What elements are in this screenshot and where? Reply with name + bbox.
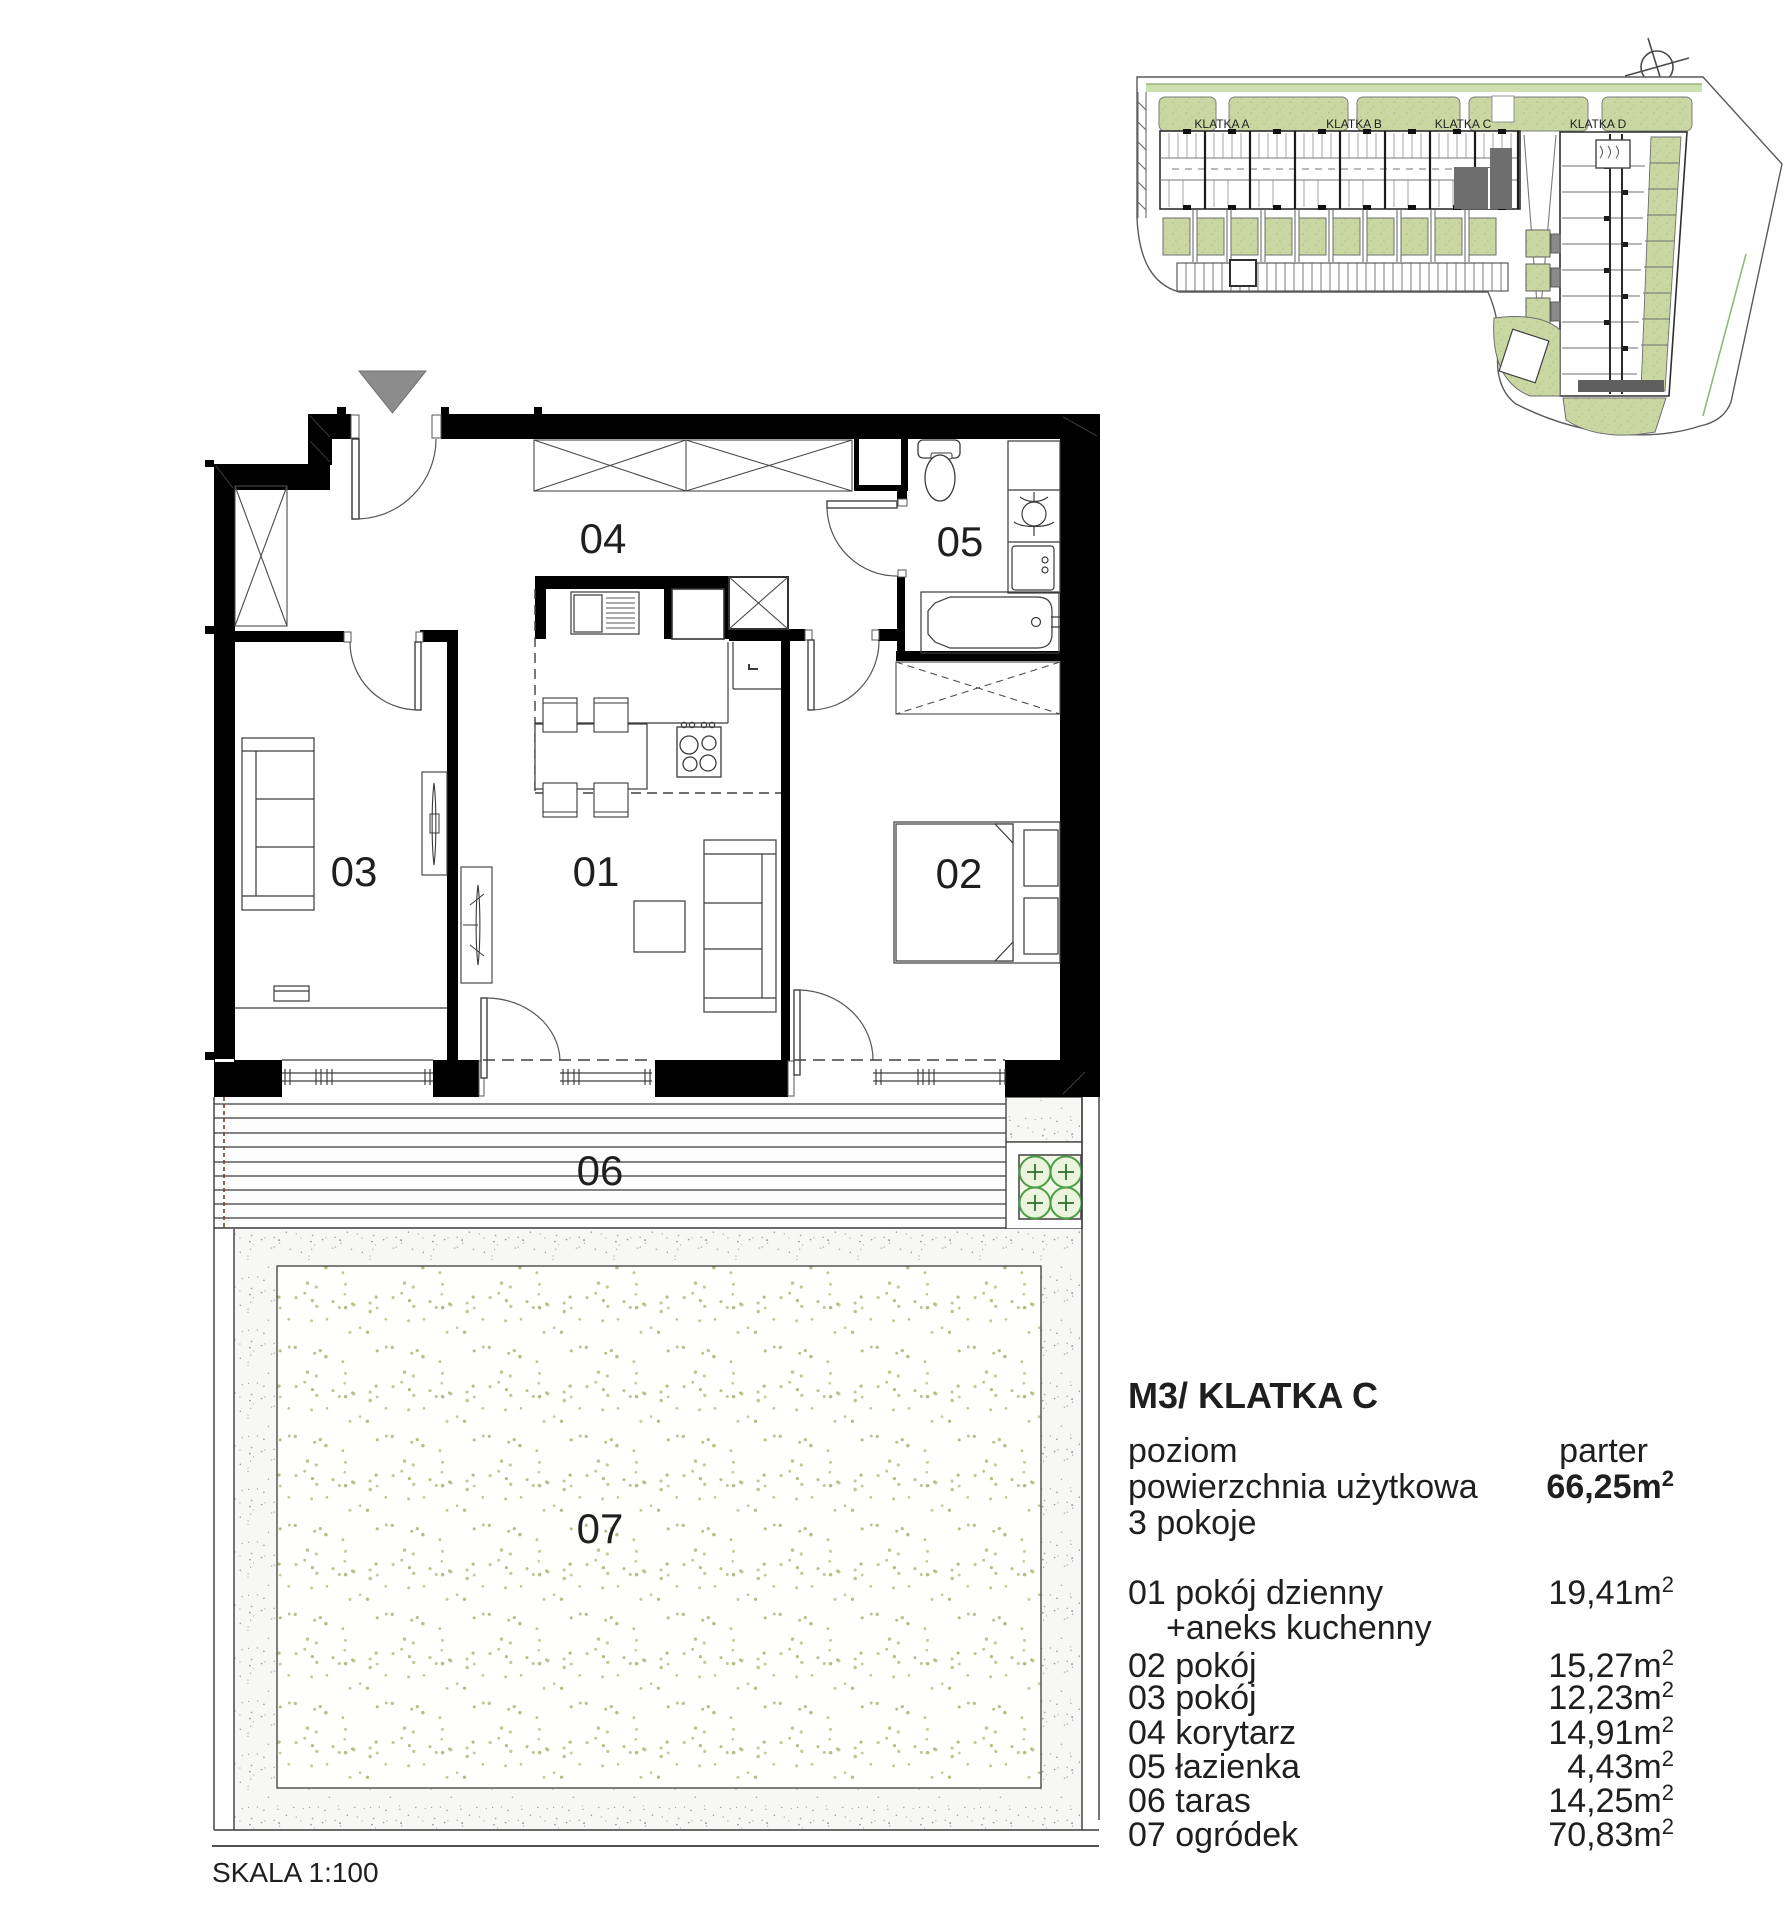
- svg-text:07: 07: [577, 1505, 624, 1552]
- svg-text:12,23m2: 12,23m2: [1548, 1677, 1674, 1717]
- svg-text:3 pokoje: 3 pokoje: [1128, 1504, 1257, 1542]
- svg-text:KLATKA D: KLATKA D: [1570, 117, 1627, 131]
- svg-text:KLATKA C: KLATKA C: [1435, 117, 1492, 131]
- svg-text:SKALA 1:100: SKALA 1:100: [212, 1857, 379, 1888]
- svg-text:07 ogródek: 07 ogródek: [1128, 1816, 1299, 1854]
- svg-text:parter: parter: [1559, 1432, 1648, 1470]
- svg-text:KLATKA A: KLATKA A: [1194, 117, 1249, 131]
- svg-text:03 pokój: 03 pokój: [1128, 1679, 1257, 1717]
- svg-text:04 korytarz: 04 korytarz: [1128, 1714, 1296, 1752]
- svg-text:06 taras: 06 taras: [1128, 1782, 1251, 1820]
- svg-text:05 łazienka: 05 łazienka: [1128, 1748, 1300, 1786]
- svg-text:poziom: poziom: [1128, 1432, 1238, 1470]
- svg-text:19,41m2: 19,41m2: [1548, 1572, 1674, 1612]
- svg-text:01: 01: [573, 848, 620, 895]
- svg-text:04: 04: [580, 515, 627, 562]
- svg-text:01 pokój dzienny: 01 pokój dzienny: [1128, 1574, 1383, 1612]
- svg-text:powierzchnia użytkowa: powierzchnia użytkowa: [1128, 1468, 1478, 1506]
- svg-text:14,91m2: 14,91m2: [1548, 1712, 1674, 1752]
- svg-text:M3/ KLATKA C: M3/ KLATKA C: [1128, 1375, 1378, 1416]
- svg-text:KLATKA B: KLATKA B: [1326, 117, 1382, 131]
- svg-text:05: 05: [937, 518, 984, 565]
- svg-text:14,25m2: 14,25m2: [1548, 1780, 1674, 1820]
- svg-text:+aneks kuchenny: +aneks kuchenny: [1166, 1609, 1432, 1647]
- svg-text:02: 02: [936, 850, 983, 897]
- svg-text:4,43m2: 4,43m2: [1567, 1746, 1674, 1786]
- svg-text:66,25m2: 66,25m2: [1546, 1466, 1674, 1506]
- svg-text:03: 03: [331, 848, 378, 895]
- svg-text:70,83m2: 70,83m2: [1548, 1814, 1674, 1854]
- svg-text:06: 06: [577, 1147, 624, 1194]
